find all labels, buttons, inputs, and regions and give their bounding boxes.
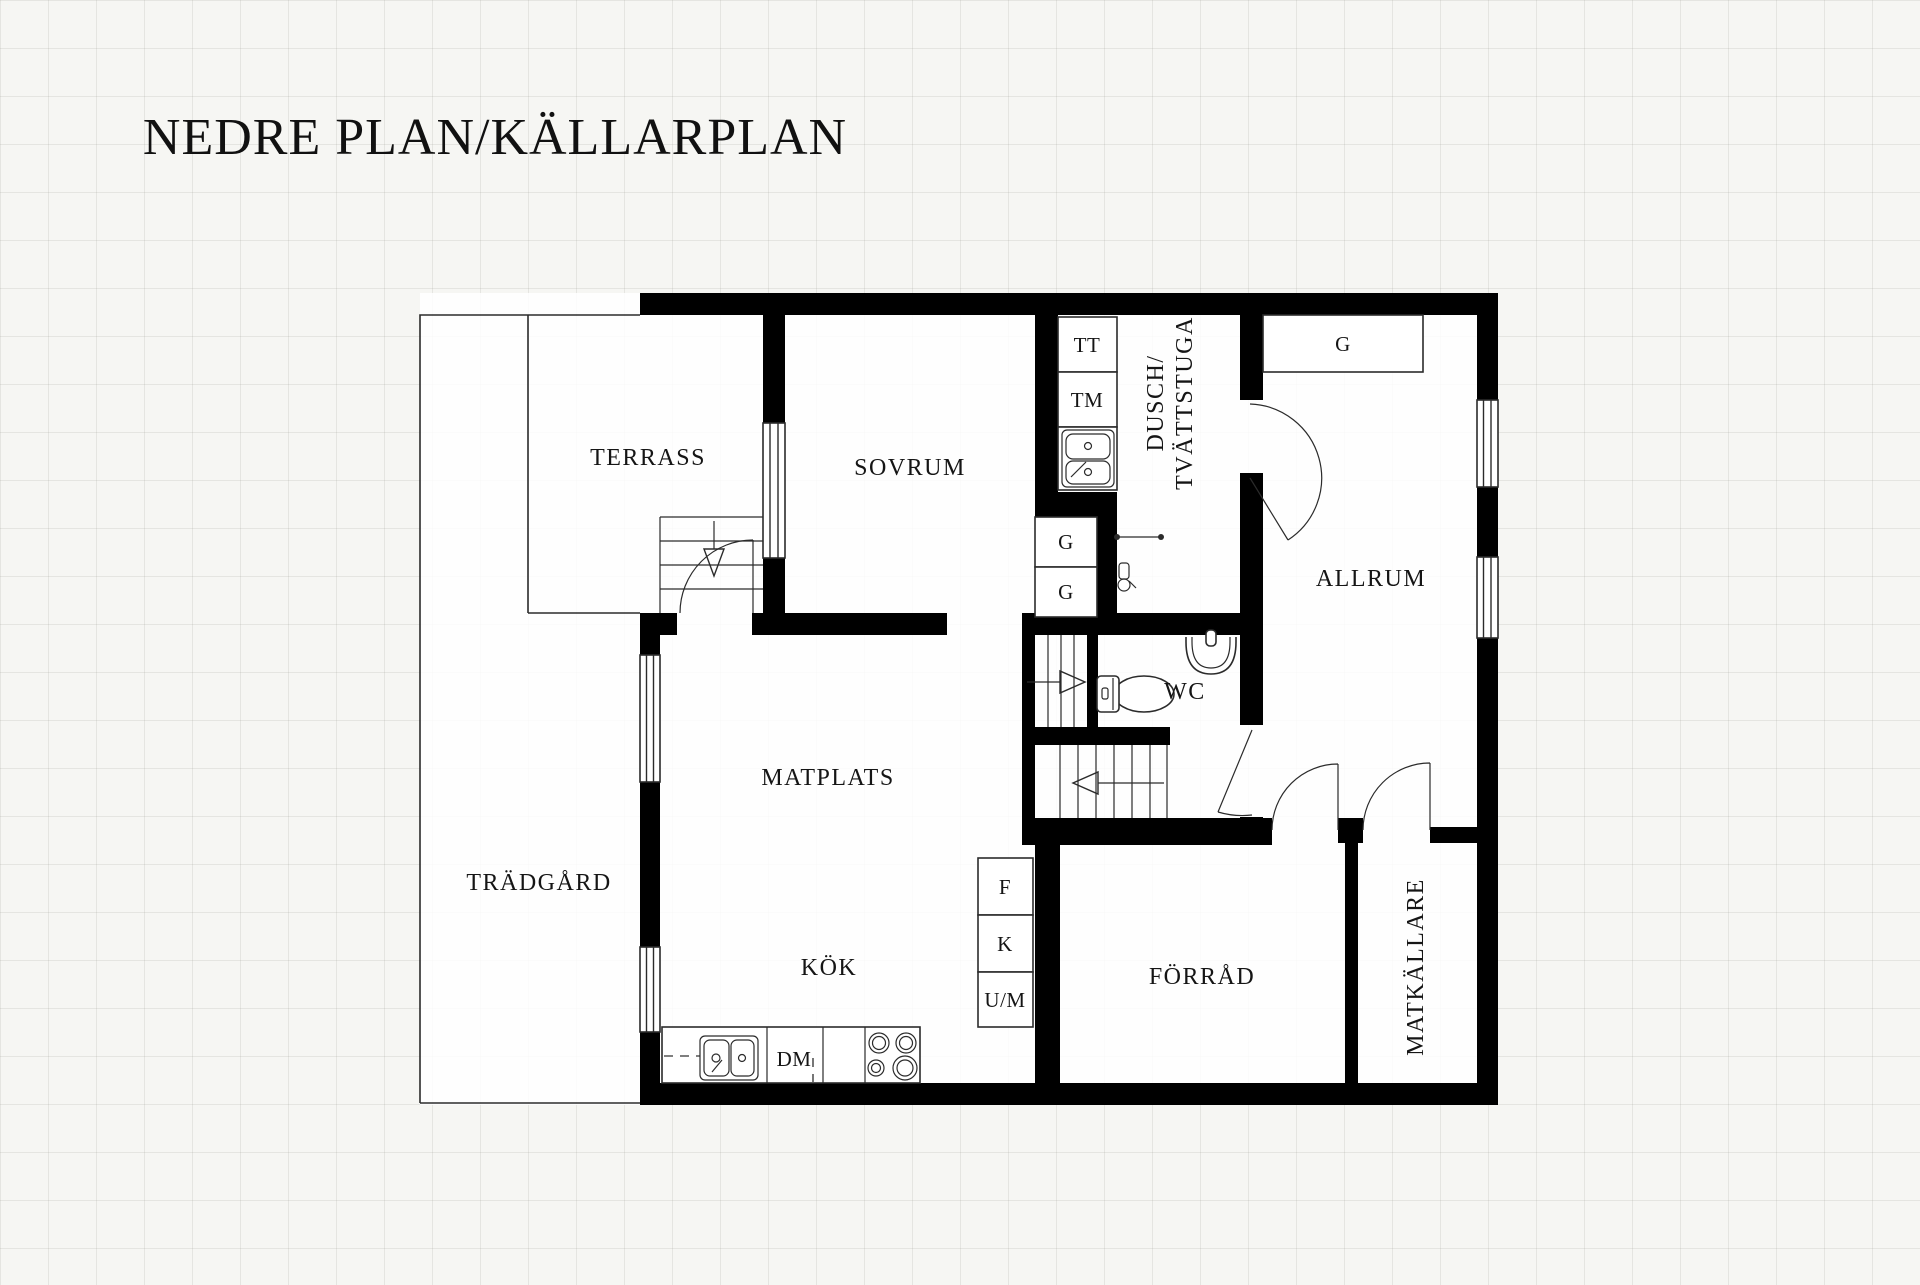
label-sovrum: SOVRUM: [854, 455, 966, 481]
wall-left-3: [640, 1032, 660, 1105]
wall-terrace-sovrum-1: [763, 315, 785, 423]
wall-laundry-allrum-2: [1240, 473, 1263, 725]
wall-sovrum-east: [1035, 315, 1058, 492]
label-allrum: ALLRUM: [1316, 566, 1426, 592]
label-um: U/M: [984, 988, 1025, 1012]
wall-sovrum-south-b: [752, 613, 947, 635]
label-g-allrum: G: [1335, 332, 1351, 356]
label-f: F: [999, 875, 1011, 899]
wall-sovrum-south-a: [640, 613, 677, 635]
label-wc: WC: [1164, 679, 1206, 705]
wall-closet-base: [1035, 492, 1117, 517]
wall-right-2: [1477, 487, 1498, 557]
window-sovrum-west: [763, 423, 785, 558]
floor-plan-page: NEDRE PLAN/KÄLLARPLAN: [0, 0, 1920, 1280]
floor-plan: TERRASS SOVRUM DUSCH/TVÄTTSTUGA ALLRUM M…: [0, 0, 1920, 1280]
window-left-lower: [640, 947, 660, 1032]
wall-hall-west: [1022, 635, 1035, 845]
wall-door-stub: [1338, 818, 1363, 843]
plan-underlay: [420, 293, 1498, 1105]
label-forrad: FÖRRÅD: [1149, 964, 1255, 990]
label-tt: TT: [1074, 333, 1101, 357]
wall-top: [640, 293, 1498, 315]
wall-laundry-allrum-1: [1240, 315, 1263, 400]
wall-left-2: [640, 782, 660, 947]
wall-matkallare-west: [1345, 843, 1358, 1085]
wall-allrum-south-east: [1430, 827, 1477, 843]
window-right-upper: [1477, 400, 1498, 487]
toilet: [1097, 676, 1174, 712]
label-matplats: MATPLATS: [761, 765, 894, 791]
label-terrass: TERRASS: [590, 445, 706, 471]
label-tm: TM: [1071, 388, 1104, 412]
label-matkallare: MATKÄLLARE: [1403, 878, 1429, 1056]
wall-right-3: [1477, 638, 1498, 1105]
window-right-lower: [1477, 557, 1498, 638]
wall-forrad-west: [1035, 845, 1060, 1083]
page-title-text: NEDRE PLAN/KÄLLARPLAN: [0, 108, 1045, 167]
wall-hall-south: [1035, 818, 1272, 845]
wall-stair-landing: [1035, 727, 1170, 745]
label-k: K: [997, 932, 1013, 956]
label-g-hall-bottom: G: [1058, 580, 1074, 604]
label-g-hall-top: G: [1058, 530, 1074, 554]
label-kok: KÖK: [801, 955, 858, 981]
wall-right-1: [1477, 315, 1498, 400]
wall-terrace-sovrum-2: [763, 558, 785, 615]
window-left-upper: [640, 655, 660, 782]
wall-bottom: [640, 1083, 1498, 1105]
label-dm: DM: [777, 1047, 812, 1071]
wall-g-east: [1097, 517, 1117, 633]
page-title: NEDRE PLAN/KÄLLARPLAN: [0, 108, 1915, 167]
label-tradgard: TRÄDGÅRD: [466, 870, 611, 896]
